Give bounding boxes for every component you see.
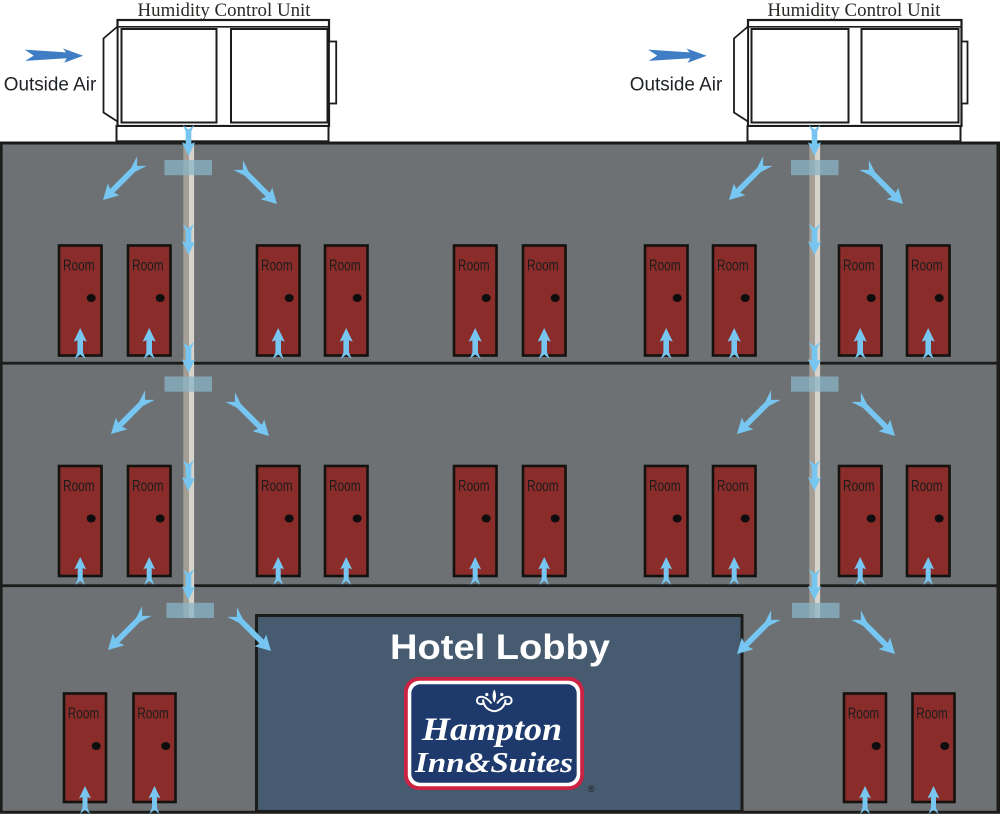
svg-text:Room: Room — [63, 257, 95, 274]
svg-text:Hotel Lobby: Hotel Lobby — [390, 628, 611, 667]
svg-text:Room: Room — [261, 257, 293, 274]
svg-text:Room: Room — [916, 705, 948, 722]
svg-text:Room: Room — [63, 478, 95, 495]
svg-text:Room: Room — [843, 478, 875, 495]
svg-text:Room: Room — [843, 257, 875, 274]
svg-text:Room: Room — [717, 257, 749, 274]
svg-text:Room: Room — [329, 257, 361, 274]
svg-text:Room: Room — [649, 257, 681, 274]
svg-text:Room: Room — [132, 478, 164, 495]
svg-text:Room: Room — [458, 257, 490, 274]
svg-text:Outside Air: Outside Air — [4, 74, 97, 96]
svg-text:Room: Room — [848, 705, 880, 722]
svg-text:Outside Air: Outside Air — [630, 74, 723, 96]
svg-text:Room: Room — [717, 478, 749, 495]
svg-text:®: ® — [588, 784, 595, 794]
svg-text:Humidity Control Unit: Humidity Control Unit — [138, 1, 312, 21]
svg-text:Room: Room — [68, 705, 100, 722]
svg-text:Room: Room — [911, 478, 943, 495]
svg-text:Room: Room — [527, 478, 559, 495]
svg-text:Room: Room — [261, 478, 293, 495]
svg-text:Room: Room — [137, 705, 169, 722]
svg-text:Inn&Suites: Inn&Suites — [414, 747, 573, 779]
svg-text:Humidity Control Unit: Humidity Control Unit — [768, 1, 942, 21]
svg-text:Room: Room — [458, 478, 490, 495]
svg-text:Hampton: Hampton — [421, 712, 562, 748]
svg-text:Room: Room — [527, 257, 559, 274]
svg-text:Room: Room — [132, 257, 164, 274]
svg-text:Room: Room — [329, 478, 361, 495]
svg-text:Room: Room — [649, 478, 681, 495]
svg-text:Room: Room — [911, 257, 943, 274]
